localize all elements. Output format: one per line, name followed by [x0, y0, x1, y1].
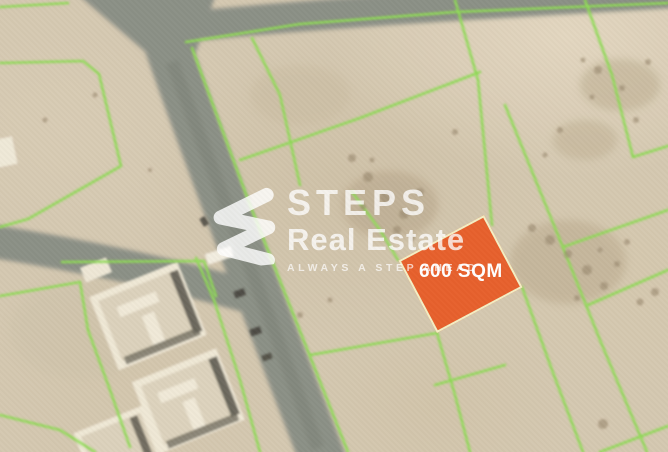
brand-watermark: STEPS Real Estate ALWAYS A STEP AHEAD: [212, 185, 479, 274]
edge-structure: [0, 136, 18, 168]
brand-tagline: ALWAYS A STEP AHEAD: [287, 262, 479, 274]
brand-name-line2: Real Estate: [287, 224, 479, 255]
brand-text-block: STEPS Real Estate ALWAYS A STEP AHEAD: [287, 185, 479, 274]
satellite-map-image: 600 SQM STEPS Real Estate ALWAYS A STEP …: [0, 0, 668, 452]
steps-zigzag-s-icon: [208, 186, 282, 270]
brand-name-line1: STEPS: [287, 185, 479, 221]
